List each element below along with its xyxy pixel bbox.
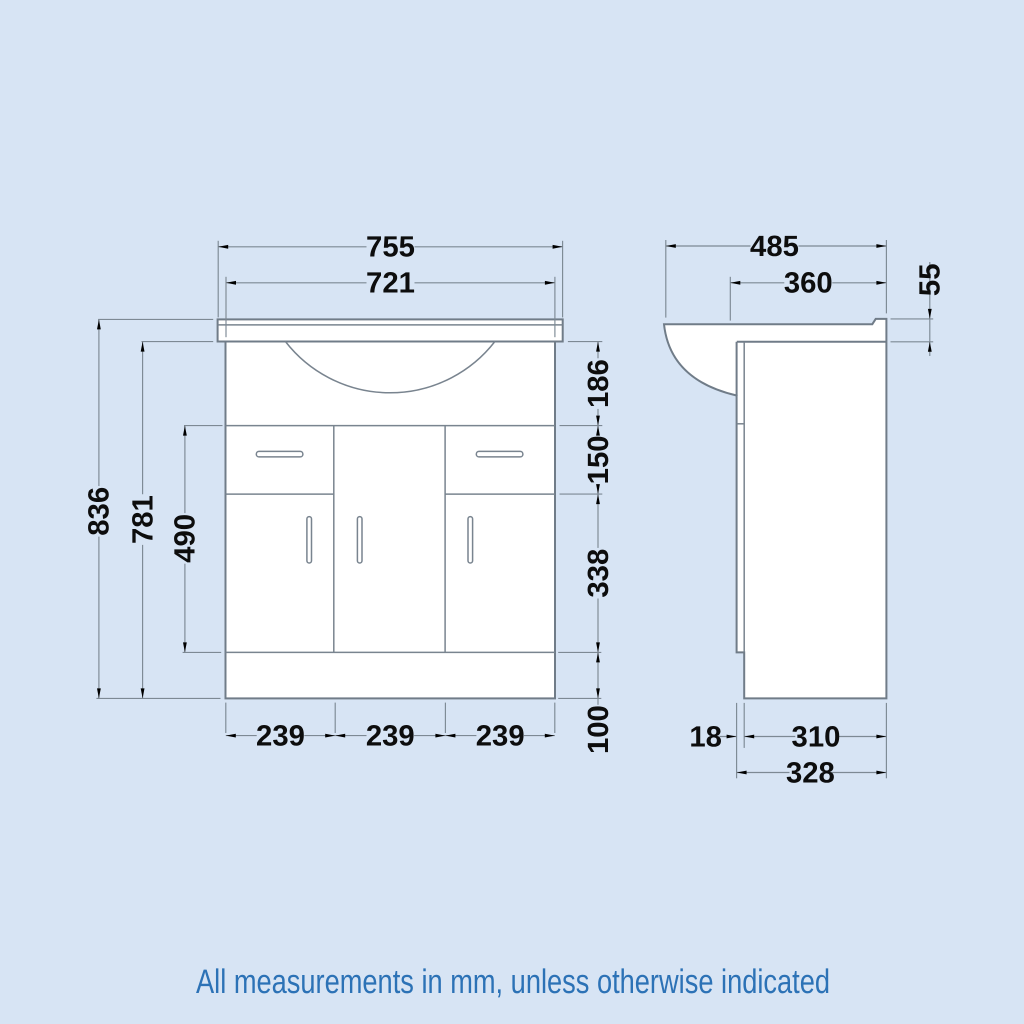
svg-text:360: 360 (784, 267, 833, 300)
svg-text:55: 55 (914, 264, 947, 297)
svg-text:338: 338 (582, 549, 615, 598)
svg-text:781: 781 (126, 495, 159, 544)
svg-text:18: 18 (689, 720, 722, 753)
svg-text:239: 239 (476, 719, 525, 752)
svg-text:150: 150 (582, 435, 615, 484)
svg-text:All measurements in mm, unless: All measurements in mm, unless otherwise… (196, 963, 830, 1001)
svg-text:239: 239 (366, 719, 415, 752)
svg-text:100: 100 (582, 705, 615, 754)
svg-text:490: 490 (169, 514, 202, 563)
svg-text:186: 186 (582, 359, 615, 408)
svg-text:755: 755 (366, 231, 415, 264)
svg-text:328: 328 (786, 756, 835, 789)
svg-text:310: 310 (792, 720, 841, 753)
svg-text:485: 485 (750, 230, 799, 263)
svg-text:836: 836 (83, 487, 116, 536)
svg-text:239: 239 (256, 719, 305, 752)
svg-text:721: 721 (366, 267, 415, 300)
